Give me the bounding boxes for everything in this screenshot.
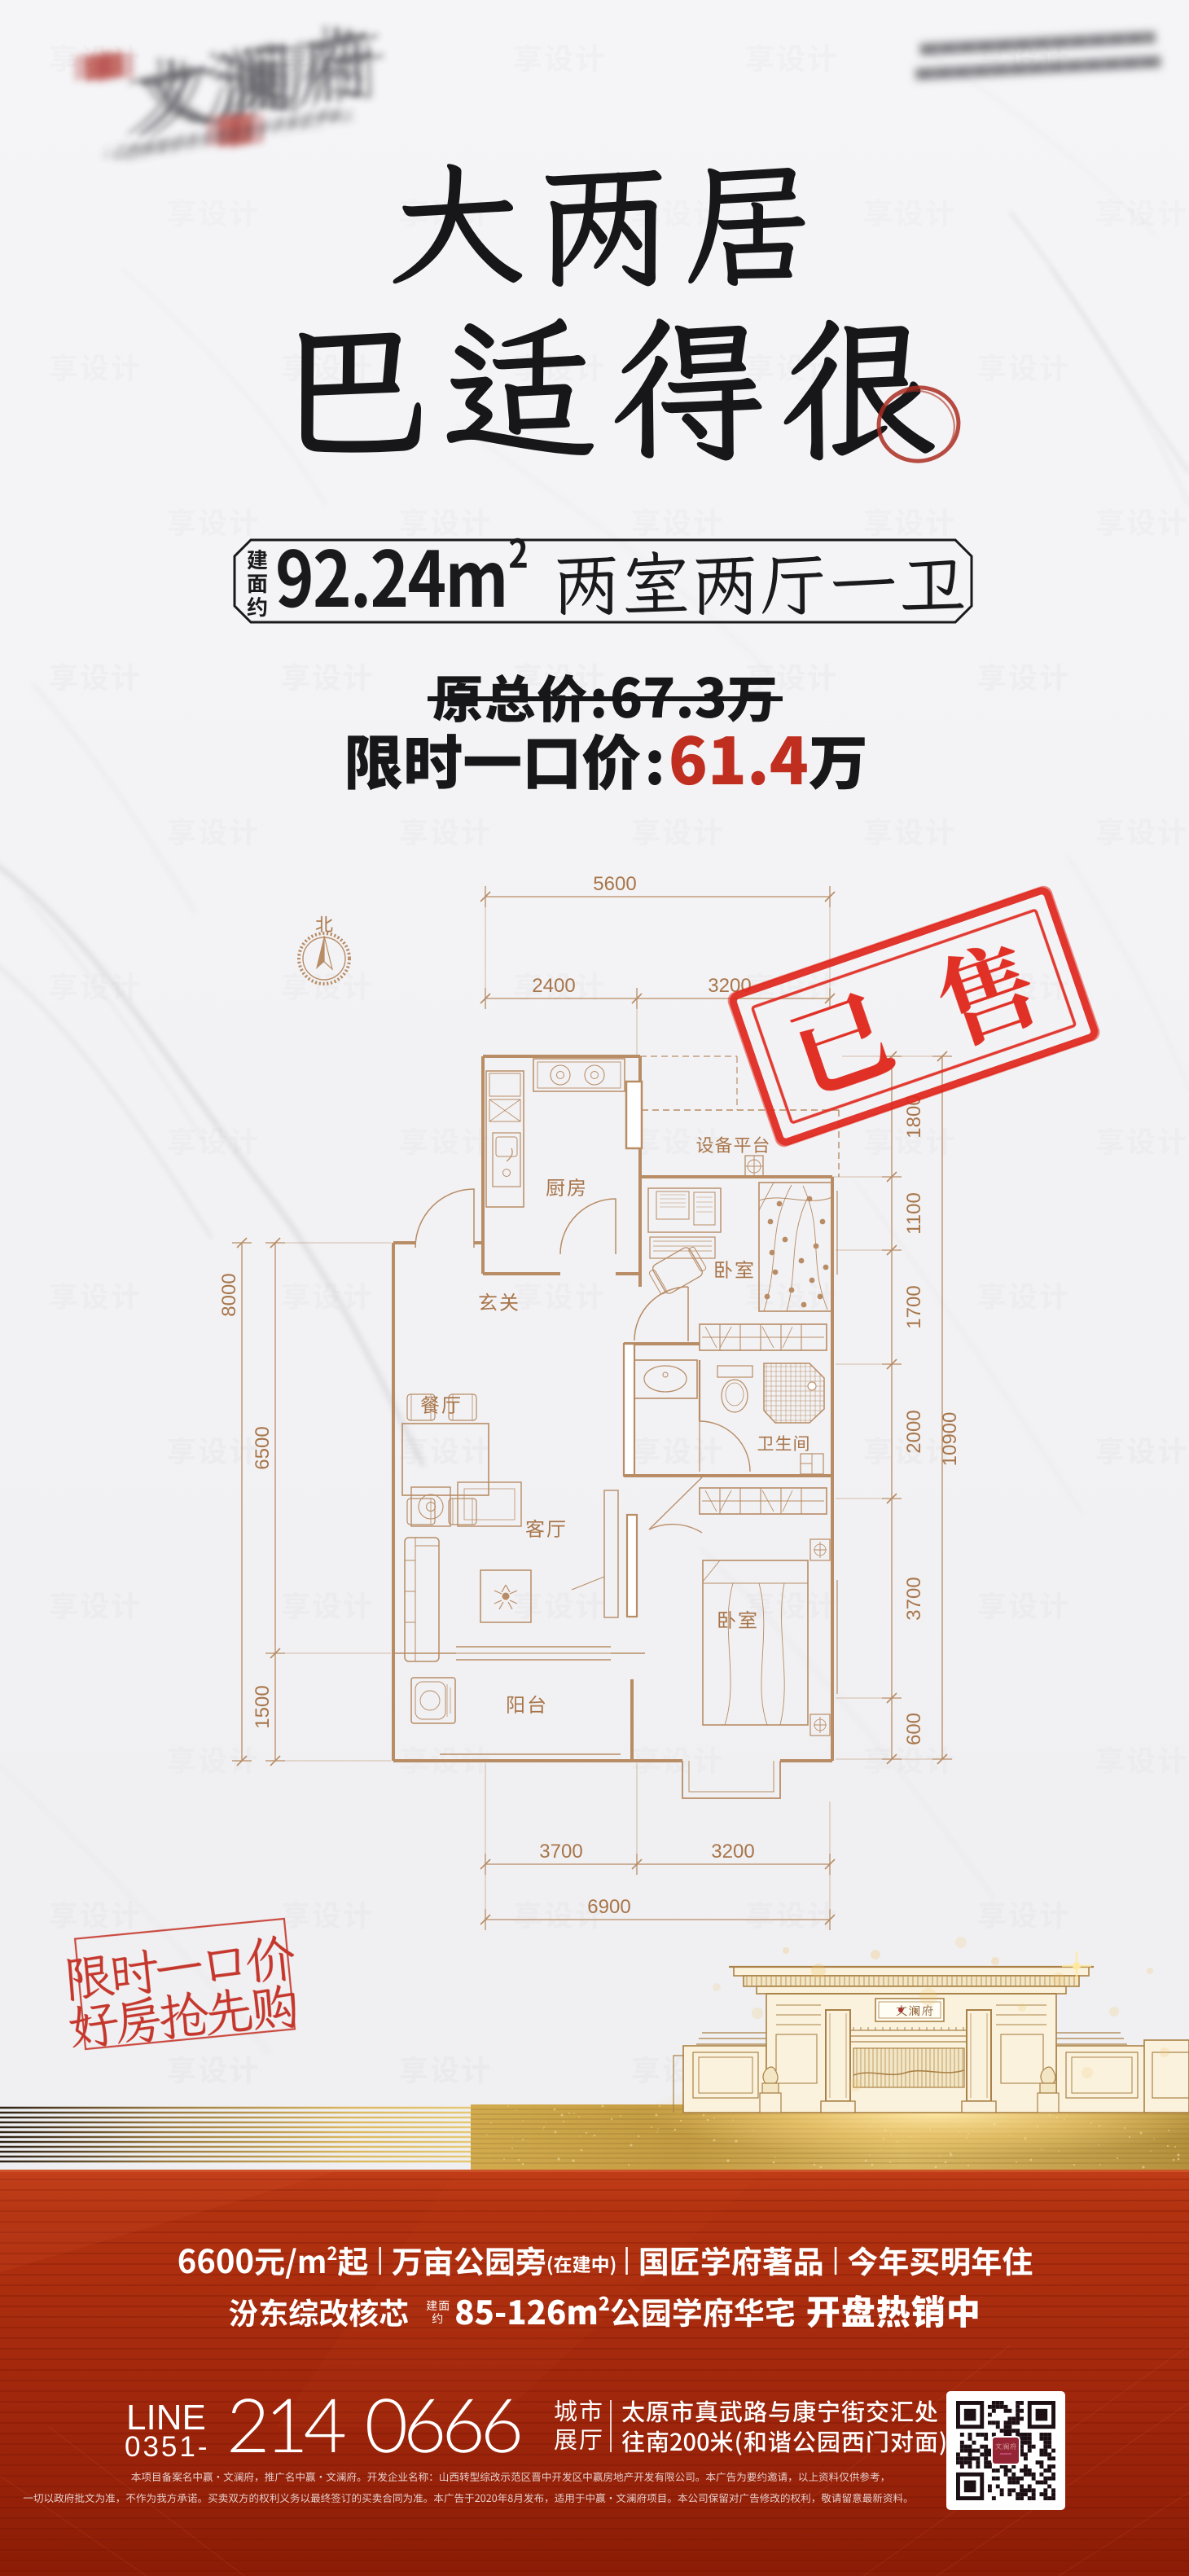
svg-text:3700: 3700 (903, 1577, 925, 1620)
svg-text:0351-: 0351- (125, 2431, 210, 2463)
svg-text:6500: 6500 (252, 1426, 274, 1469)
svg-text:5600: 5600 (593, 873, 636, 895)
svg-text:3700: 3700 (539, 1841, 582, 1863)
svg-text:600: 600 (903, 1713, 925, 1745)
svg-text:6900: 6900 (587, 1896, 630, 1918)
svg-text:2400: 2400 (532, 975, 575, 997)
svg-text:1100: 1100 (903, 1192, 925, 1235)
svg-text:8000: 8000 (218, 1273, 240, 1316)
svg-text:1500: 1500 (252, 1685, 274, 1728)
svg-text:1700: 1700 (903, 1285, 925, 1328)
svg-text:2000: 2000 (903, 1410, 925, 1453)
svg-text:3200: 3200 (711, 1841, 754, 1863)
svg-text:10900: 10900 (939, 1412, 961, 1467)
